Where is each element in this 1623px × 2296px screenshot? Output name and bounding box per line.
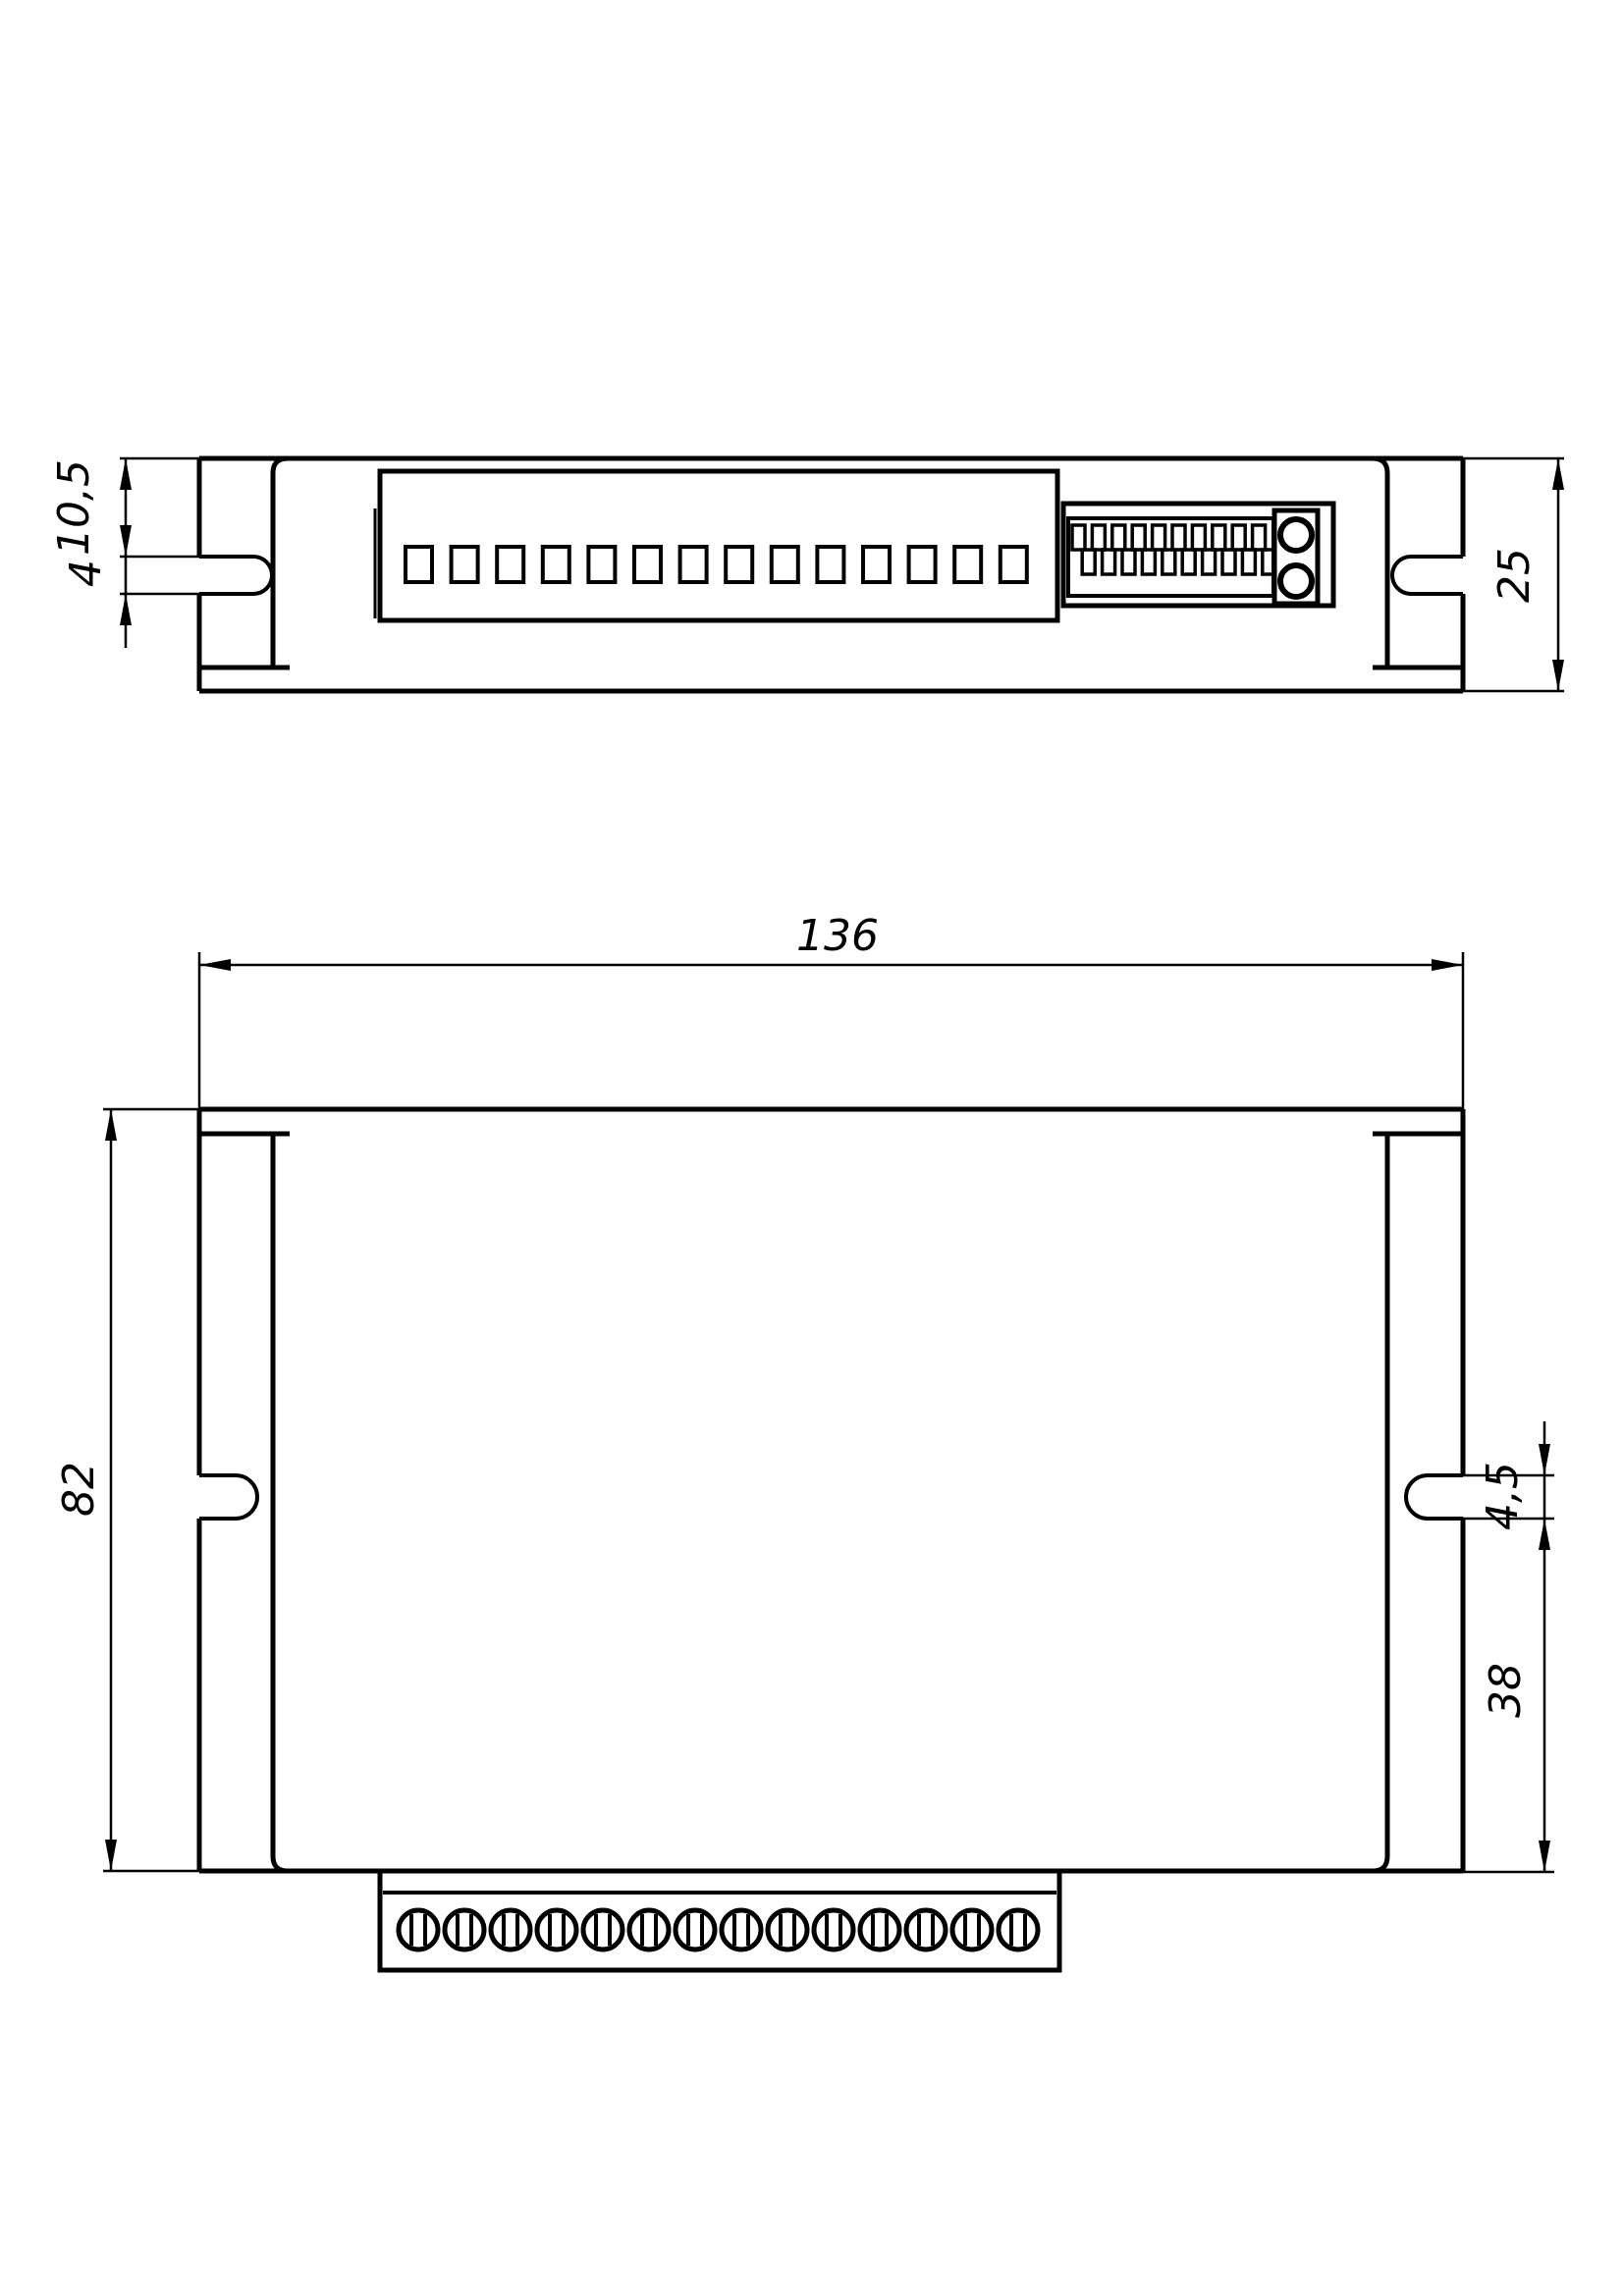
dim-label-edge-to-slot: 10,5: [49, 459, 99, 556]
dim-label-slot-width: 4: [61, 560, 111, 587]
terminal-screw-circle: [860, 1910, 899, 1949]
dip-lever-up: [1192, 525, 1205, 550]
front-view-left-mounting-slot: [199, 1475, 257, 1519]
terminal-block: [380, 1871, 1059, 1970]
terminal-screw: [537, 1910, 576, 1949]
dip-lever-down: [1103, 550, 1115, 574]
arrowhead: [1539, 1519, 1550, 1550]
terminal-screw-slot: [827, 1914, 840, 1946]
dip-lever-up: [1092, 525, 1105, 550]
terminal-screws: [399, 1910, 1038, 1949]
dip-screw-holes: [1280, 519, 1312, 597]
arrowhead: [120, 525, 132, 557]
connector-pin: [772, 547, 798, 582]
dip-lever-up: [1132, 525, 1145, 550]
arrowhead: [120, 594, 132, 625]
terminal-screw-slot: [411, 1914, 425, 1946]
dip-lever-up: [1232, 525, 1245, 550]
terminal-screw-slot: [734, 1914, 748, 1946]
connector-pin: [863, 547, 890, 582]
terminal-screw-circle: [952, 1910, 992, 1949]
terminal-screw-circle: [768, 1910, 807, 1949]
connector-pin: [909, 547, 936, 582]
connector-pin: [726, 547, 752, 582]
front-view-right-mounting-slot: [1406, 1475, 1463, 1519]
terminal-screw: [629, 1910, 669, 1949]
terminal-screw: [906, 1910, 946, 1949]
terminal-screw-slot: [504, 1914, 517, 1946]
terminal-screw: [999, 1910, 1038, 1949]
top-view: 10,5 4 25: [49, 458, 1564, 691]
front-view-right-flange-line: [1373, 1134, 1387, 1871]
arrowhead: [1539, 1841, 1550, 1872]
dip-lever-down: [1122, 550, 1135, 574]
terminal-screw-slot: [642, 1914, 656, 1946]
terminal-screw-circle: [583, 1910, 622, 1949]
connector-pins: [406, 547, 1027, 582]
terminal-screw: [860, 1910, 899, 1949]
dim-ext-lines-136: [199, 952, 1463, 1109]
dim-front-height: 82: [54, 1109, 199, 1871]
terminal-screw-circle: [491, 1910, 530, 1949]
dip-switch-levers: [1072, 525, 1275, 574]
terminal-screw-circle: [906, 1910, 946, 1949]
terminal-screw-slot: [458, 1914, 471, 1946]
front-view-left-flange-line: [273, 1134, 288, 1871]
terminal-screw-circle: [722, 1910, 761, 1949]
terminal-screw-circle: [445, 1910, 484, 1949]
arrowhead: [1539, 1444, 1550, 1475]
dim-label-width: 136: [796, 911, 879, 961]
connector-pin: [817, 547, 843, 582]
dip-lever-up: [1172, 525, 1185, 550]
terminal-screw: [583, 1910, 622, 1949]
arrowhead: [105, 1109, 117, 1141]
dip-lever-down: [1242, 550, 1255, 574]
arrowhead: [1432, 959, 1463, 971]
terminal-screw-circle: [676, 1910, 715, 1949]
terminal-screw-circle: [537, 1910, 576, 1949]
dip-lever-up: [1153, 525, 1165, 550]
dip-lever-down: [1082, 550, 1095, 574]
terminal-screw: [676, 1910, 715, 1949]
dim-label-depth: 25: [1489, 548, 1540, 603]
top-view-right-flange-line: [1373, 458, 1387, 667]
connector-pin: [954, 547, 981, 582]
dip-lever-up: [1213, 525, 1225, 550]
terminal-screw-slot: [550, 1914, 564, 1946]
dip-lever-down: [1142, 550, 1155, 574]
connector-pin: [452, 547, 478, 582]
terminal-screw-slot: [965, 1914, 979, 1946]
dip-screw-hole: [1280, 565, 1312, 597]
dip-lever-up: [1253, 525, 1266, 550]
connector-pin: [406, 547, 432, 582]
dip-lever-up: [1112, 525, 1125, 550]
drawing-sheet: 10,5 4 25: [0, 0, 1623, 2296]
terminal-screw-circle: [399, 1910, 438, 1949]
dip-lever-down: [1182, 550, 1195, 574]
terminal-screw: [722, 1910, 761, 1949]
connector-pin: [543, 547, 569, 582]
front-view: 136 82 4,5 38: [54, 911, 1554, 1970]
terminal-screw: [952, 1910, 992, 1949]
terminal-screw-slot: [919, 1914, 933, 1946]
connector-pin: [588, 547, 615, 582]
dim-front-slot: 4,5 38: [1463, 1421, 1554, 1872]
terminal-screw-slot: [688, 1914, 702, 1946]
dip-lever-up: [1072, 525, 1085, 550]
terminal-screw-slot: [781, 1914, 794, 1946]
arrowhead: [105, 1840, 117, 1871]
dip-lever-down: [1163, 550, 1175, 574]
terminal-screw: [768, 1910, 807, 1949]
terminal-screw: [445, 1910, 484, 1949]
connector-pin: [680, 547, 707, 582]
dim-top-right: 25: [1463, 458, 1564, 691]
dim-label-height: 82: [54, 1462, 104, 1517]
dim-ext-lines-82: [103, 1109, 199, 1871]
terminal-screw-circle: [629, 1910, 669, 1949]
connector-pin: [1001, 547, 1027, 582]
terminal-screw: [814, 1910, 853, 1949]
dim-top-left: 10,5 4: [49, 458, 199, 648]
terminal-screw-slot: [596, 1914, 610, 1946]
dim-label-slot-to-bottom: 38: [1481, 1663, 1531, 1718]
arrowhead: [1552, 458, 1564, 490]
connector-pin: [497, 547, 523, 582]
terminal-screw: [399, 1910, 438, 1949]
dip-lever-down: [1203, 550, 1216, 574]
arrowhead: [120, 458, 132, 490]
dip-lever-down: [1222, 550, 1235, 574]
terminal-screw-slot: [1011, 1914, 1025, 1946]
top-view-left-flange-line: [273, 458, 288, 667]
connector-pin: [634, 547, 661, 582]
arrowhead: [1552, 660, 1564, 691]
top-view-right-mounting-slot: [1392, 557, 1463, 594]
technical-drawing: 10,5 4 25: [0, 0, 1623, 2296]
terminal-screw-slot: [873, 1914, 887, 1946]
dim-front-width: 136: [199, 911, 1463, 1109]
dip-switch-assembly: [1063, 504, 1333, 606]
dim-label-slot-width: 4,5: [1478, 1462, 1528, 1530]
terminal-screw: [491, 1910, 530, 1949]
arrowhead: [199, 959, 231, 971]
dip-screw-hole: [1280, 519, 1312, 551]
top-view-left-mounting-slot: [199, 557, 272, 594]
terminal-screw-circle: [999, 1910, 1038, 1949]
dim-ext-lines-left: [120, 458, 199, 594]
terminal-screw-circle: [814, 1910, 853, 1949]
